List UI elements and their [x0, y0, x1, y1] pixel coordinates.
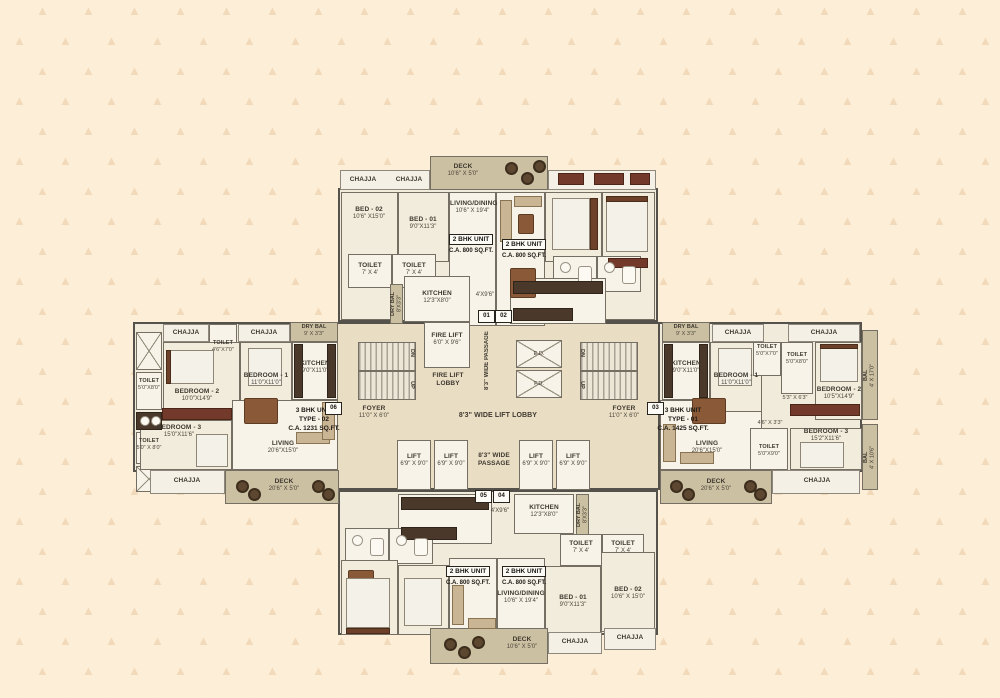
- bed: [552, 198, 590, 250]
- watermark-triangle-icon: ▲: [657, 214, 670, 227]
- watermark-triangle-icon: ▲: [841, 514, 854, 527]
- watermark-triangle-icon: ▲: [450, 664, 463, 677]
- watermark-triangle-icon: ▲: [266, 544, 279, 557]
- bed01-label: BED - 019'0"X11'3": [401, 216, 445, 232]
- watermark-triangle-icon: ▲: [887, 694, 900, 698]
- watermark-triangle-icon: ▲: [312, 4, 325, 17]
- sofa: [452, 585, 464, 625]
- u3-line2: TYPE - 02: [288, 415, 340, 424]
- bed02-dims: 10'6" X 15'0": [604, 594, 652, 602]
- watermark-triangle-icon: ▲: [13, 34, 26, 47]
- bal-label: BAL4' X 17'0": [863, 340, 877, 410]
- watermark-triangle-icon: ▲: [0, 244, 3, 257]
- watermark-triangle-icon: ▲: [59, 154, 72, 167]
- watermark-triangle-icon: ▲: [979, 94, 992, 107]
- unit-label-2bhk: 2 BHK UNITC.A. 800 SQ.FT.: [496, 233, 552, 259]
- watermark-triangle-icon: ▲: [404, 64, 417, 77]
- dining-table: [244, 398, 278, 424]
- deck-seating: [236, 480, 249, 493]
- watermark-triangle-icon: ▲: [703, 514, 716, 527]
- watermark-triangle-icon: ▲: [312, 64, 325, 77]
- watermark-triangle-icon: ▲: [82, 124, 95, 137]
- watermark-triangle-icon: ▲: [220, 664, 233, 677]
- watermark-triangle-icon: ▲: [818, 664, 831, 677]
- foyer-right-label: FOYER11'0" X 6'0": [598, 405, 650, 421]
- watermark-triangle-icon: ▲: [956, 424, 969, 437]
- bedroom1-name: BEDROOM - 1: [240, 372, 292, 380]
- toilet-label: TOILET7' X 4': [604, 540, 642, 556]
- watermark-triangle-icon: ▲: [174, 184, 187, 197]
- bed: [606, 200, 648, 252]
- deck-seating: [444, 638, 457, 651]
- watermark-triangle-icon: ▲: [979, 334, 992, 347]
- watermark-triangle-icon: ▲: [910, 124, 923, 137]
- watermark-triangle-icon: ▲: [312, 544, 325, 557]
- watermark-triangle-icon: ▲: [243, 214, 256, 227]
- foyer-name: FOYER: [598, 405, 650, 413]
- unit-area: C.A. 800 SQ.FT.: [443, 248, 499, 254]
- watermark-triangle-icon: ▲: [473, 94, 486, 107]
- bedroom1-name: BEDROOM - 1: [710, 372, 762, 380]
- planter: [630, 173, 650, 185]
- marker-text: 06: [330, 405, 337, 411]
- deck-dims: 20'6" X 5'0": [690, 486, 742, 494]
- deck-name: DECK: [690, 478, 742, 486]
- watermark-triangle-icon: ▲: [680, 304, 693, 317]
- up-text: UP: [579, 381, 585, 389]
- watermark-triangle-icon: ▲: [358, 124, 371, 137]
- bed-headboard: [606, 196, 648, 202]
- watermark-triangle-icon: ▲: [128, 64, 141, 77]
- chajja-text: CHAJJA: [792, 477, 842, 485]
- watermark-triangle-icon: ▲: [105, 154, 118, 167]
- watermark-triangle-icon: ▲: [13, 334, 26, 347]
- watermark-triangle-icon: ▲: [795, 34, 808, 47]
- bedroom3-label: BEDROOM - 315'0"X11'6": [148, 424, 210, 440]
- unit-label-2bhk: 2 BHK UNITC.A. 800 SQ.FT.: [440, 560, 496, 586]
- top-deck-dims: 10'6" X 5'0": [434, 171, 492, 179]
- watermark-triangle-icon: ▲: [13, 94, 26, 107]
- watermark-triangle-icon: ▲: [358, 4, 371, 17]
- watermark-triangle-icon: ▲: [36, 184, 49, 197]
- watermark-triangle-icon: ▲: [266, 4, 279, 17]
- drybal-label: DRY BAL9' X 3'3": [292, 324, 336, 338]
- watermark-triangle-icon: ▲: [128, 664, 141, 677]
- watermark-triangle-icon: ▲: [0, 424, 3, 437]
- chajja-label: CHAJJA: [552, 638, 598, 646]
- foyer-name: FOYER: [348, 405, 400, 413]
- watermark-triangle-icon: ▲: [82, 364, 95, 377]
- bed: [800, 442, 844, 468]
- watermark-triangle-icon: ▲: [59, 634, 72, 647]
- bed-headboard: [346, 628, 390, 634]
- watermark-triangle-icon: ▲: [979, 454, 992, 467]
- chajja-label: CHAJJA: [162, 477, 212, 485]
- watermark-triangle-icon: ▲: [13, 454, 26, 467]
- toilet-label: TOILET5'0" X 8'0": [134, 438, 164, 452]
- watermark-triangle-icon: ▲: [105, 394, 118, 407]
- unit-number-01: 01: [478, 310, 495, 323]
- watermark-triangle-icon: ▲: [772, 4, 785, 17]
- planter: [594, 173, 624, 185]
- watermark-triangle-icon: ▲: [749, 154, 762, 167]
- watermark-triangle-icon: ▲: [151, 634, 164, 647]
- lift-lobby-text: 8'3" WIDE LIFT LOBBY: [440, 412, 556, 421]
- watermark-triangle-icon: ▲: [887, 94, 900, 107]
- bed: [404, 578, 442, 626]
- watermark-triangle-icon: ▲: [59, 514, 72, 527]
- watermark-triangle-icon: ▲: [726, 544, 739, 557]
- watermark-triangle-icon: ▲: [749, 274, 762, 287]
- deck-name: DECK: [258, 478, 310, 486]
- deck-seating: [670, 480, 683, 493]
- watermark-triangle-icon: ▲: [496, 664, 509, 677]
- watermark-triangle-icon: ▲: [105, 214, 118, 227]
- watermark-triangle-icon: ▲: [703, 214, 716, 227]
- watermark-triangle-icon: ▲: [13, 154, 26, 167]
- watermark-triangle-icon: ▲: [956, 4, 969, 17]
- watermark-triangle-icon: ▲: [404, 4, 417, 17]
- drybal-label: DRY BAL9' X 3'3": [664, 324, 708, 338]
- chajja-text: CHAJJA: [162, 477, 212, 485]
- watermark-triangle-icon: ▲: [473, 34, 486, 47]
- watermark-triangle-icon: ▲: [59, 214, 72, 227]
- watermark-triangle-icon: ▲: [13, 634, 26, 647]
- watermark-triangle-icon: ▲: [0, 304, 3, 317]
- watermark-triangle-icon: ▲: [933, 694, 946, 698]
- watermark-triangle-icon: ▲: [59, 694, 72, 698]
- living-name: LIVING: [682, 440, 732, 448]
- toilet-dims: 7' X 4': [604, 548, 642, 556]
- watermark-triangle-icon: ▲: [933, 94, 946, 107]
- watermark-triangle-icon: ▲: [749, 94, 762, 107]
- toilet-dims: 4'6"X7'0": [205, 347, 241, 354]
- unit-type: 2 BHK UNIT: [446, 566, 490, 577]
- watermark-triangle-icon: ▲: [450, 124, 463, 137]
- toilet-dims: 5'0"X9'0": [750, 451, 788, 458]
- living-label: LIVING20'6"X15'0": [258, 440, 308, 456]
- watermark-triangle-icon: ▲: [13, 574, 26, 587]
- watermark-triangle-icon: ▲: [818, 124, 831, 137]
- lift-name: LIFT: [398, 453, 430, 461]
- watermark-triangle-icon: ▲: [496, 4, 509, 17]
- stair-up-label: UP: [579, 381, 585, 389]
- watermark-triangle-icon: ▲: [128, 544, 141, 557]
- watermark-triangle-icon: ▲: [749, 574, 762, 587]
- watermark-triangle-icon: ▲: [933, 154, 946, 167]
- watermark-triangle-icon: ▲: [59, 334, 72, 347]
- drybal-dims: 9' X 3'3": [292, 331, 336, 338]
- lift-label: LIFT6'9" X 9'0": [557, 453, 589, 469]
- watermark-triangle-icon: ▲: [174, 64, 187, 77]
- passage-top-label: 8'3" WIDE PASSAGE: [484, 328, 496, 394]
- watermark-triangle-icon: ▲: [634, 4, 647, 17]
- chajja-label: CHAJJA: [342, 176, 384, 184]
- watermark-triangle-icon: ▲: [36, 244, 49, 257]
- watermark-triangle-icon: ▲: [266, 304, 279, 317]
- watermark-triangle-icon: ▲: [197, 94, 210, 107]
- toilet-name: TOILET: [604, 540, 642, 548]
- kitchen-dims: 9'0"X11'0": [662, 368, 710, 376]
- toilet-label: TOILET7' X 4': [350, 262, 390, 278]
- marker-text: 02: [500, 313, 507, 319]
- kitchen-name: KITCHEN: [516, 504, 572, 512]
- watermark-triangle-icon: ▲: [887, 334, 900, 347]
- bedroom3-name: BEDROOM - 3: [794, 428, 858, 436]
- wardrobe: [790, 404, 860, 416]
- bed02-name: BED - 02: [344, 206, 394, 214]
- bedroom2-name: BEDROOM - 2: [814, 386, 864, 394]
- watermark-triangle-icon: ▲: [565, 94, 578, 107]
- kitchen-dims: 9'0"X11'0": [292, 368, 338, 376]
- watermark-triangle-icon: ▲: [0, 4, 3, 17]
- watermark-triangle-icon: ▲: [174, 664, 187, 677]
- watermark-triangle-icon: ▲: [956, 64, 969, 77]
- watermark-triangle-icon: ▲: [381, 34, 394, 47]
- watermark-triangle-icon: ▲: [82, 664, 95, 677]
- watermark-triangle-icon: ▲: [795, 214, 808, 227]
- watermark-triangle-icon: ▲: [772, 64, 785, 77]
- kitchen-dims: 12'3"X8'0": [408, 298, 466, 306]
- watermark-triangle-icon: ▲: [887, 394, 900, 407]
- staircase-left: [358, 342, 416, 400]
- watermark-triangle-icon: ▲: [128, 184, 141, 197]
- living-name: LIVING: [258, 440, 308, 448]
- sofa: [468, 618, 496, 629]
- watermark-triangle-icon: ▲: [519, 34, 532, 47]
- watermark-triangle-icon: ▲: [266, 184, 279, 197]
- watermark-triangle-icon: ▲: [749, 634, 762, 647]
- lift-label: LIFT6'9" X 9'0": [520, 453, 552, 469]
- watermark-triangle-icon: ▲: [105, 514, 118, 527]
- fire-duct: F.D.: [516, 370, 562, 398]
- watermark-triangle-icon: ▲: [427, 34, 440, 47]
- watermark-triangle-icon: ▲: [496, 124, 509, 137]
- kitchen-name: KITCHEN: [292, 360, 338, 368]
- watermark-triangle-icon: ▲: [220, 304, 233, 317]
- watermark-triangle-icon: ▲: [542, 64, 555, 77]
- watermark-triangle-icon: ▲: [887, 214, 900, 227]
- watermark-triangle-icon: ▲: [197, 574, 210, 587]
- watermark-triangle-icon: ▲: [243, 94, 256, 107]
- bed02-label: BED - 0210'6" X 15'0": [604, 586, 652, 602]
- watermark-triangle-icon: ▲: [220, 544, 233, 557]
- watermark-triangle-icon: ▲: [979, 574, 992, 587]
- toilet-name: TOILET: [750, 444, 788, 451]
- toilet-dims: 7' X 4': [394, 270, 434, 278]
- chajja-label: CHAJJA: [388, 176, 430, 184]
- stair-dn-label: DN: [579, 349, 585, 357]
- watermark-triangle-icon: ▲: [36, 304, 49, 317]
- watermark-triangle-icon: ▲: [197, 214, 210, 227]
- chajja-text: CHAJJA: [716, 329, 760, 337]
- watermark-triangle-icon: ▲: [680, 544, 693, 557]
- watermark-triangle-icon: ▲: [979, 394, 992, 407]
- watermark-triangle-icon: ▲: [795, 574, 808, 587]
- watermark-triangle-icon: ▲: [979, 514, 992, 527]
- watermark-triangle-icon: ▲: [864, 304, 877, 317]
- living-dims: 20'6"X15'0": [258, 448, 308, 456]
- watermark-triangle-icon: ▲: [358, 664, 371, 677]
- watermark-triangle-icon: ▲: [910, 364, 923, 377]
- passage-dim: 4'X9'6": [486, 508, 514, 516]
- marker-text: 05: [480, 493, 487, 499]
- watermark-triangle-icon: ▲: [841, 634, 854, 647]
- watermark-triangle-icon: ▲: [657, 94, 670, 107]
- watermark-triangle-icon: ▲: [634, 664, 647, 677]
- watermark-triangle-icon: ▲: [450, 4, 463, 17]
- watermark-triangle-icon: ▲: [703, 574, 716, 587]
- watermark-triangle-icon: ▲: [128, 604, 141, 617]
- watermark-triangle-icon: ▲: [933, 634, 946, 647]
- passage-dim: 4'X9'6": [470, 292, 500, 300]
- watermark-triangle-icon: ▲: [726, 664, 739, 677]
- watermark-triangle-icon: ▲: [749, 214, 762, 227]
- watermark-triangle-icon: ▲: [82, 184, 95, 197]
- watermark-triangle-icon: ▲: [289, 154, 302, 167]
- watermark-triangle-icon: ▲: [749, 694, 762, 698]
- watermark-triangle-icon: ▲: [82, 244, 95, 257]
- watermark-triangle-icon: ▲: [220, 604, 233, 617]
- chajja-text: CHAJJA: [165, 329, 207, 337]
- bed02-name: BED - 02: [604, 586, 652, 594]
- toilet-name: TOILET: [750, 344, 784, 351]
- u3-line1: 3 BHK UNIT: [656, 406, 710, 415]
- coffee-table: [518, 214, 534, 234]
- lift-name: LIFT: [435, 453, 467, 461]
- watermark-triangle-icon: ▲: [519, 94, 532, 107]
- drybal-name: DRY BAL: [664, 324, 708, 331]
- bedroom2-dims: 10'5"X14'9": [814, 394, 864, 402]
- watermark-triangle-icon: ▲: [335, 634, 348, 647]
- livingdining-dims: 10'6" X 19'4": [450, 208, 495, 216]
- watermark-triangle-icon: ▲: [82, 604, 95, 617]
- watermark-triangle-icon: ▲: [956, 544, 969, 557]
- watermark-triangle-icon: ▲: [381, 154, 394, 167]
- room-toilet-right2: [781, 342, 813, 394]
- watermark-triangle-icon: ▲: [496, 64, 509, 77]
- toilet-dims: 7' X 4': [562, 548, 600, 556]
- watermark-triangle-icon: ▲: [335, 694, 348, 698]
- watermark-triangle-icon: ▲: [59, 34, 72, 47]
- watermark-triangle-icon: ▲: [680, 664, 693, 677]
- watermark-triangle-icon: ▲: [197, 694, 210, 698]
- watermark-triangle-icon: ▲: [59, 574, 72, 587]
- watermark-triangle-icon: ▲: [887, 454, 900, 467]
- watermark-triangle-icon: ▲: [312, 184, 325, 197]
- watermark-triangle-icon: ▲: [105, 94, 118, 107]
- deck-name: DECK: [496, 636, 548, 644]
- watermark-triangle-icon: ▲: [565, 154, 578, 167]
- watermark-triangle-icon: ▲: [818, 544, 831, 557]
- deck-label: DECK20'6" X 5'0": [690, 478, 742, 494]
- watermark-triangle-icon: ▲: [82, 424, 95, 437]
- watermark-triangle-icon: ▲: [312, 304, 325, 317]
- toilet-dims: 5'0" X 8'0": [134, 445, 164, 452]
- watermark-triangle-icon: ▲: [151, 274, 164, 287]
- watermark-triangle-icon: ▲: [588, 124, 601, 137]
- chajja-label: CHAJJA: [800, 329, 848, 337]
- watermark-triangle-icon: ▲: [887, 34, 900, 47]
- bed02-label: BED - 0210'6" X15'0": [344, 206, 394, 222]
- watermark-triangle-icon: ▲: [680, 4, 693, 17]
- watermark-triangle-icon: ▲: [956, 304, 969, 317]
- toilet-fixture: [622, 266, 636, 284]
- watermark-triangle-icon: ▲: [82, 4, 95, 17]
- watermark-triangle-icon: ▲: [956, 244, 969, 257]
- watermark-triangle-icon: ▲: [726, 124, 739, 137]
- watermark-triangle-icon: ▲: [519, 694, 532, 698]
- passage-dim: 4'6" X 3'3": [754, 420, 786, 427]
- watermark-triangle-icon: ▲: [680, 184, 693, 197]
- watermark-triangle-icon: ▲: [105, 694, 118, 698]
- watermark-triangle-icon: ▲: [588, 664, 601, 677]
- watermark-triangle-icon: ▲: [703, 694, 716, 698]
- watermark-triangle-icon: ▲: [473, 694, 486, 698]
- watermark-triangle-icon: ▲: [174, 304, 187, 317]
- watermark-triangle-icon: ▲: [335, 94, 348, 107]
- toilet-name: TOILET: [134, 378, 164, 385]
- stair-up-label: UP: [409, 381, 415, 389]
- watermark-triangle-icon: ▲: [680, 244, 693, 257]
- watermark-triangle-icon: ▲: [105, 574, 118, 587]
- drybal-label: DRY BAL8'X3'3": [390, 286, 403, 322]
- unit-number-05: 05: [475, 490, 492, 503]
- toilet-name: TOILET: [779, 352, 815, 359]
- bal-dims: 4' X 10'6": [869, 430, 875, 484]
- watermark-triangle-icon: ▲: [565, 34, 578, 47]
- watermark-triangle-icon: ▲: [726, 604, 739, 617]
- watermark-triangle-icon: ▲: [956, 664, 969, 677]
- bed-headboard: [590, 198, 598, 250]
- bed: [820, 348, 858, 382]
- watermark-triangle-icon: ▲: [427, 694, 440, 698]
- kitchen-counter: [401, 527, 457, 540]
- electrical-duct: E.D.: [516, 340, 562, 368]
- marker-text: 03: [652, 405, 659, 411]
- toilet-label: TOILET7' X 4': [394, 262, 434, 278]
- watermark-triangle-icon: ▲: [726, 244, 739, 257]
- watermark-triangle-icon: ▲: [910, 664, 923, 677]
- watermark-triangle-icon: ▲: [864, 124, 877, 137]
- watermark-triangle-icon: ▲: [542, 664, 555, 677]
- watermark-triangle-icon: ▲: [36, 544, 49, 557]
- watermark-triangle-icon: ▲: [772, 664, 785, 677]
- watermark-triangle-icon: ▲: [772, 544, 785, 557]
- watermark-triangle-icon: ▲: [910, 184, 923, 197]
- watermark-triangle-icon: ▲: [795, 694, 808, 698]
- watermark-triangle-icon: ▲: [289, 274, 302, 287]
- watermark-triangle-icon: ▲: [243, 34, 256, 47]
- watermark-triangle-icon: ▲: [680, 124, 693, 137]
- up-text: UP: [409, 381, 415, 389]
- watermark-triangle-icon: ▲: [933, 34, 946, 47]
- watermark-triangle-icon: ▲: [565, 694, 578, 698]
- watermark-triangle-icon: ▲: [197, 274, 210, 287]
- watermark-triangle-icon: ▲: [864, 184, 877, 197]
- bed-headboard: [166, 350, 171, 384]
- passage-dim-label: 4'X9'6": [470, 292, 500, 300]
- watermark-triangle-icon: ▲: [772, 244, 785, 257]
- livingdining-label: LIVING/DINING10'6" X 19'4": [450, 200, 495, 216]
- staircase-right: [580, 342, 638, 400]
- watermark-triangle-icon: ▲: [772, 304, 785, 317]
- watermark-triangle-icon: ▲: [128, 124, 141, 137]
- watermark-triangle-icon: ▲: [59, 94, 72, 107]
- watermark-triangle-icon: ▲: [979, 34, 992, 47]
- watermark-triangle-icon: ▲: [979, 214, 992, 227]
- watermark-triangle-icon: ▲: [105, 334, 118, 347]
